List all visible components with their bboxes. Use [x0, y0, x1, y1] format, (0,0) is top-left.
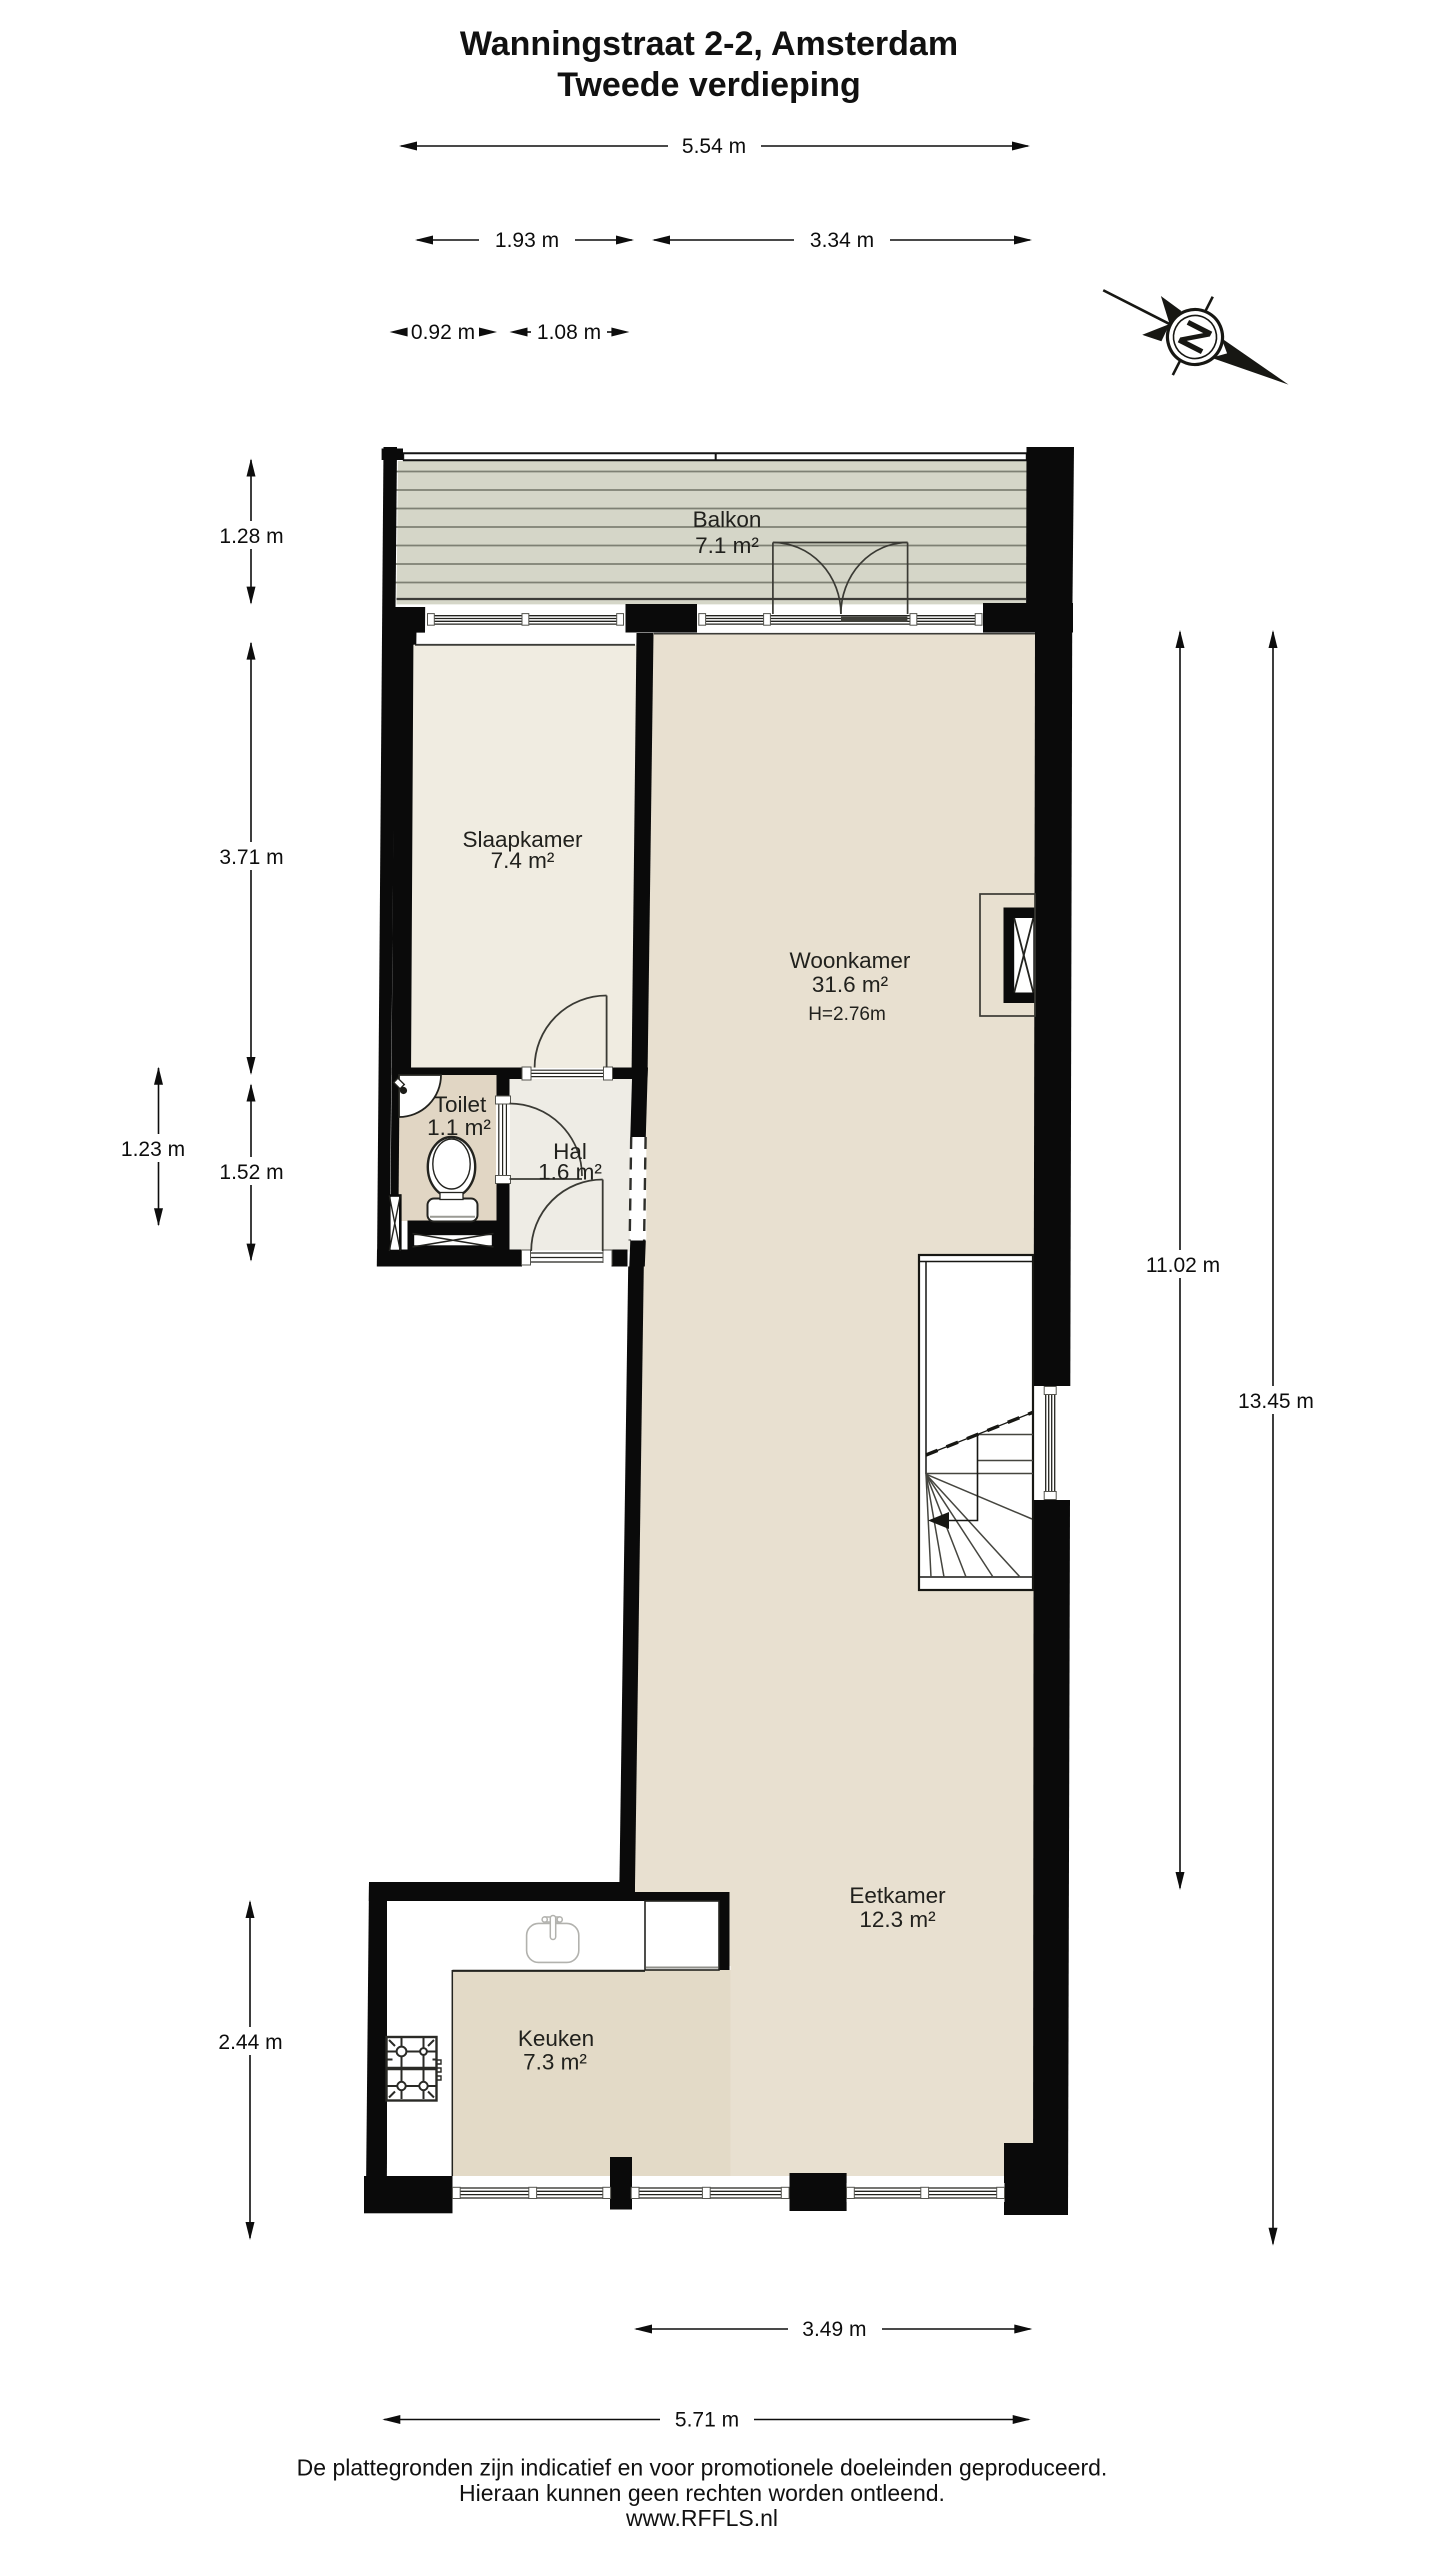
- svg-text:3.34 m: 3.34 m: [810, 229, 874, 252]
- svg-text:1.93 m: 1.93 m: [495, 229, 559, 252]
- svg-text:1.08 m: 1.08 m: [537, 321, 601, 344]
- svg-text:Toilet: Toilet: [434, 1092, 487, 1117]
- svg-text:12.3 m²: 12.3 m²: [859, 1907, 936, 1932]
- svg-text:0.92 m: 0.92 m: [411, 321, 475, 344]
- svg-text:Tweede verdieping: Tweede verdieping: [557, 66, 861, 104]
- svg-text:3.49 m: 3.49 m: [802, 2318, 866, 2341]
- svg-text:www.RFFLS.nl: www.RFFLS.nl: [625, 2505, 778, 2531]
- svg-text:7.1 m²: 7.1 m²: [695, 533, 759, 558]
- svg-text:11.02 m: 11.02 m: [1146, 1254, 1220, 1277]
- svg-text:1.1 m²: 1.1 m²: [427, 1115, 491, 1140]
- svg-text:1.6 m²: 1.6 m²: [538, 1160, 602, 1185]
- svg-text:1.23 m: 1.23 m: [121, 1138, 185, 1161]
- svg-text:13.45 m: 13.45 m: [1238, 1390, 1314, 1413]
- svg-text:7.4 m²: 7.4 m²: [491, 848, 555, 873]
- svg-text:2.44 m: 2.44 m: [218, 2031, 282, 2054]
- svg-text:Hieraan kunnen geen rechten wo: Hieraan kunnen geen rechten worden ontle…: [459, 2480, 945, 2506]
- svg-text:3.71 m: 3.71 m: [219, 846, 283, 869]
- svg-text:De plattegronden zijn indicati: De plattegronden zijn indicatief en voor…: [297, 2455, 1108, 2481]
- svg-text:Balkon: Balkon: [693, 507, 762, 532]
- svg-text:5.54 m: 5.54 m: [682, 135, 746, 158]
- svg-text:1.52 m: 1.52 m: [219, 1161, 283, 1184]
- svg-text:Eetkamer: Eetkamer: [849, 1883, 946, 1908]
- svg-text:Woonkamer: Woonkamer: [790, 948, 911, 973]
- svg-text:Keuken: Keuken: [518, 2026, 594, 2051]
- svg-text:5.71 m: 5.71 m: [675, 2409, 739, 2432]
- svg-text:Wanningstraat 2-2, Amsterdam: Wanningstraat 2-2, Amsterdam: [460, 25, 958, 63]
- svg-text:31.6 m²: 31.6 m²: [812, 972, 889, 997]
- svg-text:1.28 m: 1.28 m: [219, 525, 283, 548]
- svg-text:7.3 m²: 7.3 m²: [523, 2050, 587, 2075]
- svg-text:H=2.76m: H=2.76m: [808, 1004, 886, 1025]
